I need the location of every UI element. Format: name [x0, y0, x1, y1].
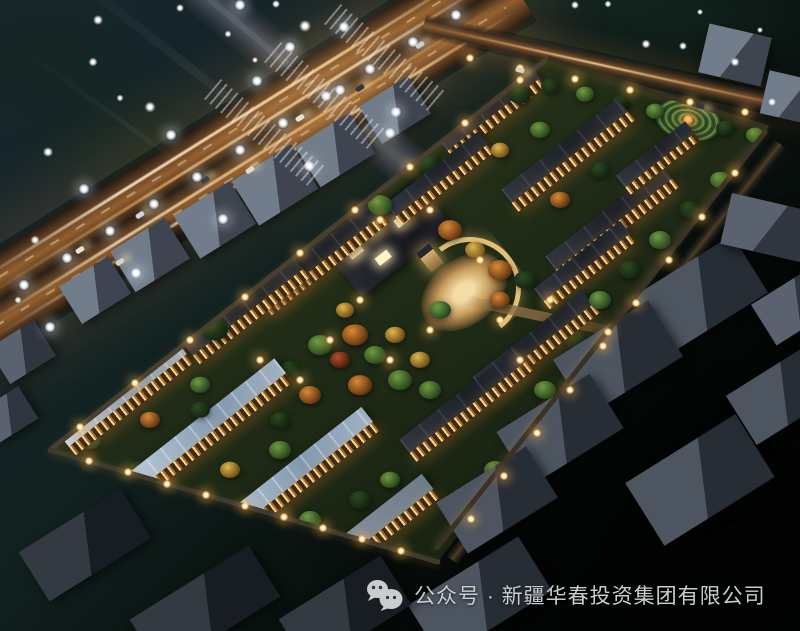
- tree: [349, 491, 371, 509]
- tree: [649, 231, 671, 249]
- tree: [530, 122, 550, 138]
- watermark: 公众号 · 新疆华春投资集团有限公司: [364, 578, 766, 612]
- tree: [590, 162, 610, 178]
- tree: [541, 79, 559, 94]
- tree: [646, 104, 664, 119]
- tree: [488, 260, 512, 280]
- scene-layer: [0, 0, 800, 631]
- tree: [491, 143, 509, 158]
- building-roof: [501, 98, 628, 203]
- tree: [330, 352, 350, 368]
- aerial-night-rendering: 公众号 · 新疆华春投资集团有限公司: [0, 0, 800, 631]
- context-building: [19, 489, 152, 602]
- tree: [576, 87, 594, 102]
- tree: [348, 375, 372, 395]
- tree: [619, 261, 641, 279]
- tree: [550, 192, 570, 208]
- tree: [229, 521, 251, 539]
- car: [515, 67, 525, 74]
- tree: [419, 381, 441, 399]
- watermark-text: 公众号 · 新疆华春投资集团有限公司: [414, 580, 766, 610]
- tree: [589, 291, 611, 309]
- tree: [438, 220, 462, 240]
- building-facade-lights: [193, 269, 310, 364]
- skylight: [374, 250, 391, 266]
- context-building: [130, 545, 281, 631]
- tree: [140, 412, 160, 428]
- wechat-icon: [364, 578, 404, 612]
- tree: [299, 386, 321, 404]
- residential-building: [182, 256, 309, 365]
- tree: [336, 303, 354, 318]
- tree: [190, 377, 210, 393]
- tree: [364, 346, 386, 364]
- tree: [308, 335, 332, 355]
- building-roof: [182, 256, 303, 356]
- tree: [110, 352, 130, 368]
- tree: [514, 271, 536, 289]
- context-building: [0, 386, 38, 444]
- tree: [410, 352, 430, 368]
- tree: [471, 63, 489, 78]
- tree: [380, 472, 400, 488]
- context-building: [760, 70, 800, 125]
- tree: [385, 327, 405, 343]
- tree: [716, 121, 734, 136]
- tree: [388, 370, 412, 390]
- tree: [342, 324, 368, 345]
- tree: [429, 301, 451, 319]
- star-light: [272, 0, 280, 8]
- tree: [270, 412, 290, 428]
- tree: [269, 441, 291, 459]
- tree: [220, 462, 240, 478]
- tree: [279, 546, 301, 564]
